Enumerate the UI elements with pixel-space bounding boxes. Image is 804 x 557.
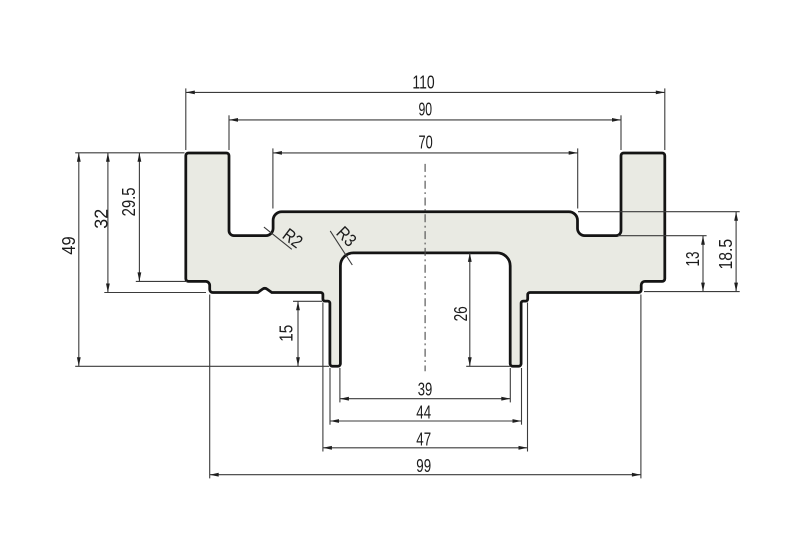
- svg-text:110: 110: [412, 73, 434, 93]
- svg-text:18.5: 18.5: [716, 239, 736, 270]
- svg-text:39: 39: [418, 379, 433, 399]
- svg-text:15: 15: [276, 325, 296, 342]
- svg-text:47: 47: [416, 429, 431, 449]
- svg-text:90: 90: [419, 100, 433, 120]
- svg-text:29.5: 29.5: [119, 187, 139, 216]
- svg-text:70: 70: [419, 132, 433, 152]
- svg-text:44: 44: [416, 402, 431, 422]
- svg-text:49: 49: [59, 236, 79, 254]
- svg-text:26: 26: [451, 306, 471, 321]
- svg-text:99: 99: [416, 456, 431, 476]
- svg-text:32: 32: [91, 209, 111, 229]
- svg-text:13: 13: [683, 252, 703, 267]
